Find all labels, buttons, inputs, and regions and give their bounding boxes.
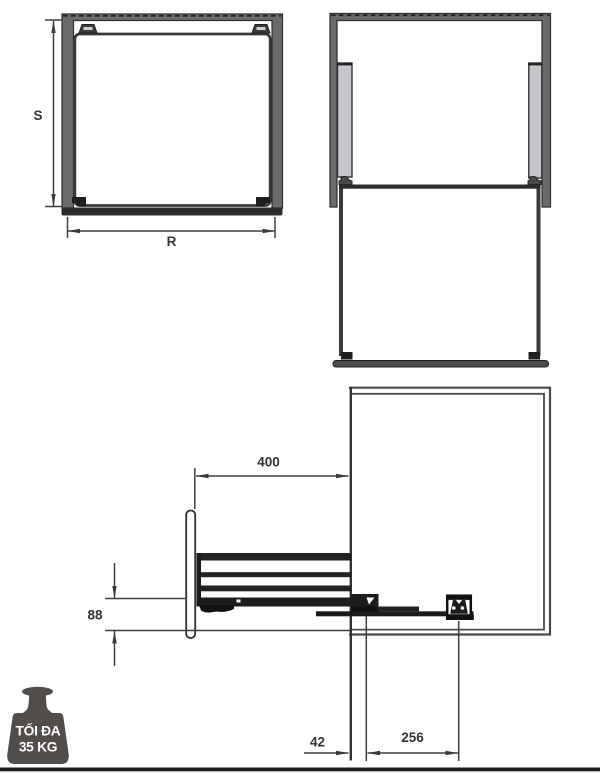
svg-text:88: 88 bbox=[87, 608, 103, 623]
svg-text:256: 256 bbox=[401, 730, 424, 745]
svg-text:S: S bbox=[33, 108, 42, 123]
svg-text:400: 400 bbox=[257, 455, 280, 470]
svg-text:35 KG: 35 KG bbox=[19, 740, 57, 755]
svg-text:TỐI ĐA: TỐI ĐA bbox=[16, 722, 61, 739]
svg-text:R: R bbox=[167, 234, 177, 249]
svg-text:42: 42 bbox=[310, 735, 325, 750]
